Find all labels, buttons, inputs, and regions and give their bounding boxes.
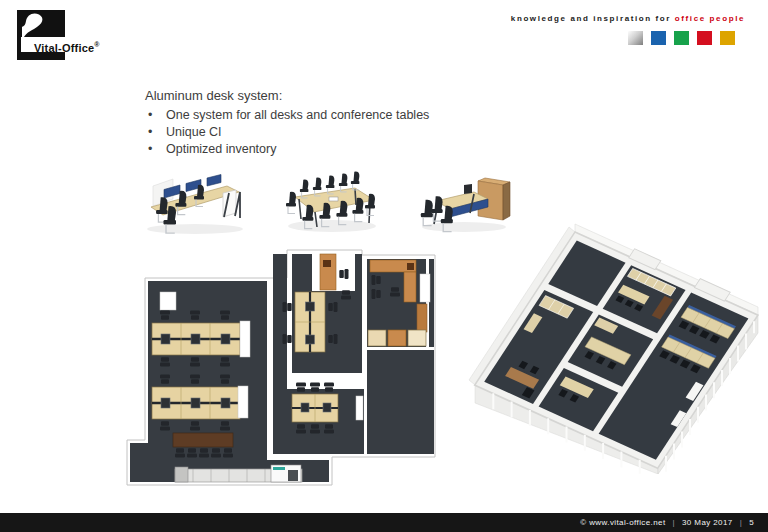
header-tagline: knowledge and inspiration for office peo…: [511, 14, 745, 23]
brand-square-gold: [720, 31, 735, 45]
conference-table-render-svg: [279, 167, 384, 237]
slide-body-text: Aluminum desk system: One system for all…: [145, 88, 565, 158]
product-image-conference-table: [279, 167, 384, 241]
iso-plan: [475, 224, 763, 468]
bullet-item: Optimized inventory: [145, 141, 565, 158]
floor-plan-2d: [118, 244, 448, 496]
bullet-list: One system for all desks and conference …: [145, 107, 565, 158]
vital-office-logo: Vital-Office®: [17, 10, 137, 60]
presentation-slide: Vital-Office® knowledge and inspiration …: [0, 0, 768, 532]
brand-square-red: [697, 31, 712, 45]
footer-bar: © www.vital-office.net | 30 May 2017 | 5: [0, 513, 768, 532]
brand-color-squares: [628, 31, 735, 45]
footer-separator: |: [740, 518, 742, 527]
tagline-highlight: office people: [675, 14, 745, 23]
bullet-item: Unique CI: [145, 124, 565, 141]
room-floors: [130, 254, 434, 482]
tagline-text: knowledge and inspiration for: [511, 14, 671, 23]
brand-square-blue: [651, 31, 666, 45]
floor-plan-3d: [450, 222, 768, 478]
logo-wordmark: Vital-Office®: [21, 37, 103, 52]
floor-plan-3d-svg: [450, 222, 768, 474]
footer-separator: |: [673, 518, 675, 527]
footer-copyright: © www.vital-office.net: [580, 518, 665, 527]
bullet-item: One system for all desks and conference …: [145, 107, 565, 124]
conference-table-2d: [173, 433, 233, 447]
logo-brand-text: Vital-Office: [34, 42, 94, 54]
footer-date: 30 May 2017: [682, 518, 733, 527]
slide-heading: Aluminum desk system:: [145, 88, 565, 103]
product-image-bench-desk: [137, 166, 249, 242]
footer-page-number: 5: [749, 518, 754, 527]
floor-plan-2d-svg: [118, 244, 448, 492]
brand-square-green: [674, 31, 689, 45]
brand-square-silver: [628, 31, 643, 45]
bench-desk-render-svg: [137, 166, 249, 238]
registered-mark: ®: [94, 41, 99, 48]
